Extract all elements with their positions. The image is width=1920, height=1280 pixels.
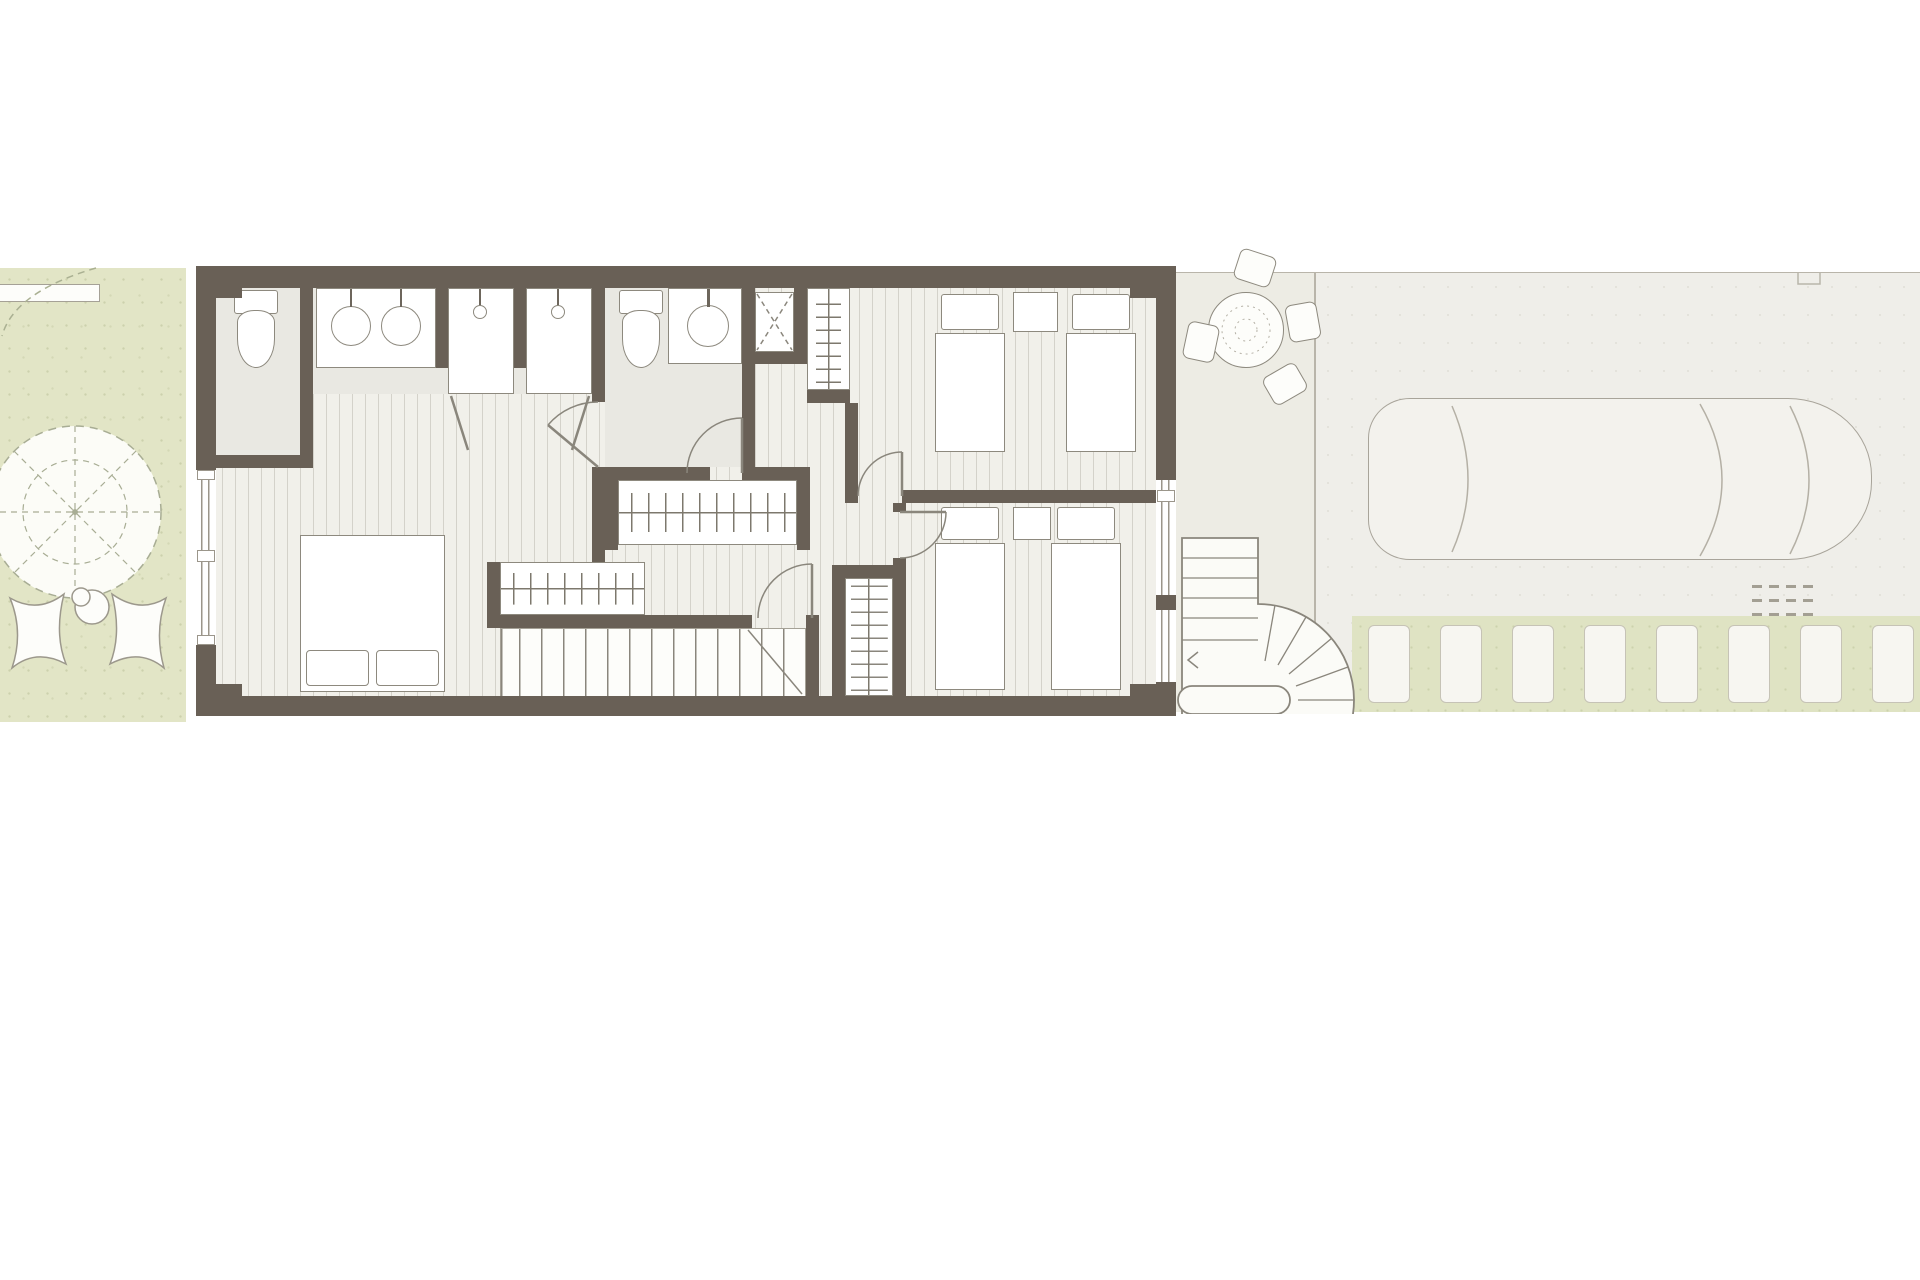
pillow bbox=[306, 650, 369, 686]
pillow bbox=[1072, 294, 1130, 330]
wall bbox=[592, 288, 605, 402]
single-bed bbox=[935, 543, 1005, 690]
stepping-plank bbox=[1584, 625, 1626, 703]
washbasin bbox=[687, 305, 729, 347]
wall-corner bbox=[1130, 684, 1176, 716]
closet-rail-vertical bbox=[807, 288, 850, 390]
wall bbox=[832, 578, 845, 696]
stepping-plank bbox=[1440, 625, 1482, 703]
wardrobe-rail bbox=[500, 562, 645, 615]
wall-corner bbox=[196, 266, 242, 298]
window-sill bbox=[197, 470, 215, 480]
lawn-strip bbox=[1352, 616, 1920, 712]
garden-area bbox=[0, 268, 186, 722]
drain-grate-dashes bbox=[1752, 576, 1816, 616]
nightstand bbox=[1013, 507, 1051, 540]
floor-plan-canvas bbox=[0, 0, 1920, 1280]
wall-corner bbox=[196, 684, 242, 716]
washbasin bbox=[381, 306, 421, 346]
wardrobe-rail bbox=[618, 480, 797, 545]
garden-bench bbox=[0, 284, 100, 302]
washbasin bbox=[331, 306, 371, 346]
window bbox=[1156, 610, 1176, 682]
wall bbox=[1156, 266, 1176, 480]
window-sill bbox=[197, 550, 215, 562]
window-sill bbox=[197, 635, 215, 645]
wall bbox=[902, 490, 1156, 503]
nightstand bbox=[1013, 292, 1058, 332]
shower-drain bbox=[473, 305, 487, 319]
installation-shaft bbox=[755, 292, 794, 352]
wall-corner bbox=[1130, 266, 1176, 298]
wall bbox=[742, 467, 810, 480]
wall bbox=[196, 696, 1176, 716]
wall bbox=[832, 565, 906, 578]
stepping-plank bbox=[1512, 625, 1554, 703]
main-staircase bbox=[500, 628, 806, 696]
wall bbox=[487, 615, 752, 628]
wall bbox=[845, 490, 858, 503]
wall bbox=[845, 403, 858, 490]
ladder-stair bbox=[845, 578, 893, 696]
wall bbox=[436, 288, 448, 368]
pillow bbox=[941, 507, 999, 540]
wall bbox=[300, 288, 313, 455]
stepping-plank bbox=[1368, 625, 1410, 703]
wall bbox=[893, 558, 906, 696]
stepping-plank bbox=[1800, 625, 1842, 703]
wall bbox=[893, 503, 906, 512]
wall bbox=[742, 288, 755, 467]
wall bbox=[807, 390, 850, 403]
toilet-bowl bbox=[237, 310, 275, 368]
wall bbox=[196, 266, 1176, 288]
single-bed bbox=[1066, 333, 1136, 452]
single-bed bbox=[935, 333, 1005, 452]
stepping-plank bbox=[1656, 625, 1698, 703]
pillow bbox=[376, 650, 439, 686]
shower-drain-tick bbox=[479, 289, 481, 306]
tap bbox=[350, 289, 353, 307]
toilet-bowl bbox=[622, 310, 660, 368]
wall bbox=[514, 288, 526, 368]
wall bbox=[806, 615, 819, 696]
stepping-plank bbox=[1728, 625, 1770, 703]
shower-cabin bbox=[448, 288, 514, 394]
single-bed bbox=[1051, 543, 1121, 690]
shower-drain-tick bbox=[557, 289, 559, 306]
pillow bbox=[941, 294, 999, 330]
wall bbox=[797, 480, 810, 550]
wall bbox=[592, 480, 605, 562]
tap bbox=[400, 289, 403, 307]
pillow bbox=[1057, 507, 1115, 540]
shower-drain bbox=[551, 305, 565, 319]
car-top-view bbox=[1368, 398, 1872, 560]
wall bbox=[216, 455, 313, 468]
wall bbox=[742, 352, 807, 364]
stepping-plank bbox=[1872, 625, 1914, 703]
wall bbox=[1156, 595, 1176, 610]
shower-cabin bbox=[526, 288, 592, 394]
terrace-chair bbox=[1284, 301, 1322, 344]
wall bbox=[605, 480, 618, 550]
wall bbox=[592, 467, 710, 480]
window-sill bbox=[1157, 490, 1175, 502]
tap bbox=[707, 289, 710, 307]
